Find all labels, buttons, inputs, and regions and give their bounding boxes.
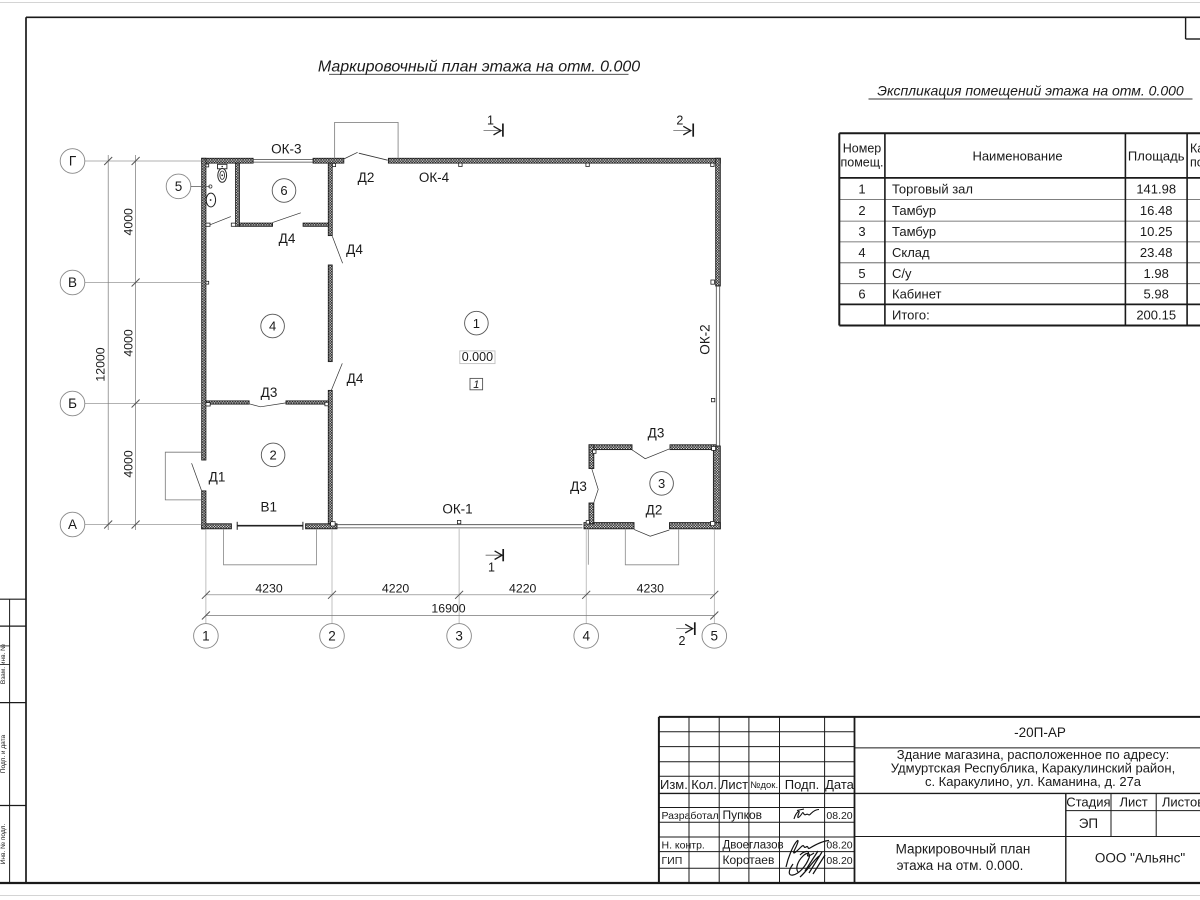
svg-text:4230: 4230 <box>255 581 283 595</box>
svg-text:Кол.: Кол. <box>691 777 717 792</box>
svg-text:Торговый зал: Торговый зал <box>892 181 973 196</box>
svg-text:Д1: Д1 <box>209 470 226 485</box>
svg-text:Маркировочный план этажа на от: Маркировочный план этажа на отм. 0.000 <box>318 59 640 76</box>
svg-text:2: 2 <box>269 448 276 463</box>
svg-text:4: 4 <box>269 319 276 334</box>
svg-text:Д4: Д4 <box>279 231 296 246</box>
svg-text:1.98: 1.98 <box>1144 266 1169 281</box>
svg-text:5: 5 <box>175 179 183 194</box>
svg-text:Листов: Листов <box>1162 795 1200 810</box>
svg-text:Д2: Д2 <box>646 503 663 518</box>
svg-text:141.98: 141.98 <box>1136 181 1176 196</box>
svg-text:4: 4 <box>582 629 590 644</box>
svg-text:-20П-АР: -20П-АР <box>1014 725 1066 740</box>
svg-text:ОК-3: ОК-3 <box>271 142 301 157</box>
svg-text:6: 6 <box>858 287 865 302</box>
svg-text:1: 1 <box>473 379 479 391</box>
svg-text:ОК-4: ОК-4 <box>419 170 450 185</box>
svg-text:Двоеглазов: Двоеглазов <box>723 839 784 851</box>
svg-text:ОК-1: ОК-1 <box>442 502 472 517</box>
svg-text:3: 3 <box>455 629 463 644</box>
svg-text:Д2: Д2 <box>358 170 375 185</box>
svg-text:№док.: №док. <box>750 780 778 791</box>
svg-text:С/у: С/у <box>892 266 912 281</box>
svg-text:08.20: 08.20 <box>826 810 852 822</box>
svg-text:4220: 4220 <box>509 581 537 595</box>
svg-text:ООО "Альянс": ООО "Альянс" <box>1095 851 1185 866</box>
svg-text:Экспликация помещений этажа на: Экспликация помещений этажа на отм. 0.00… <box>877 83 1184 99</box>
svg-text:Стадия: Стадия <box>1066 795 1110 810</box>
svg-text:Коротаев: Коротаев <box>723 853 775 867</box>
svg-text:Площадь: Площадь <box>1128 149 1185 164</box>
svg-text:с. Каракулино, ул. Каманина, д: с. Каракулино, ул. Каманина, д. 27а <box>925 774 1142 789</box>
svg-text:Лист: Лист <box>1119 795 1147 810</box>
svg-text:1: 1 <box>858 181 865 196</box>
svg-text:помещ.: помещ. <box>840 156 883 170</box>
svg-text:Д3: Д3 <box>261 385 278 400</box>
svg-text:Г: Г <box>69 154 77 169</box>
svg-text:Подп.: Подп. <box>785 777 820 792</box>
svg-text:Взам. инв. №: Взам. инв. № <box>0 644 7 684</box>
svg-text:Маркировочный план: Маркировочный план <box>896 841 1031 856</box>
svg-text:Ка: Ка <box>1190 142 1200 156</box>
svg-text:Номер: Номер <box>843 142 882 156</box>
svg-text:В1: В1 <box>260 500 277 515</box>
svg-text:2: 2 <box>679 634 686 648</box>
svg-text:4000: 4000 <box>121 329 135 357</box>
svg-text:12000: 12000 <box>93 347 107 381</box>
svg-text:4000: 4000 <box>121 208 135 236</box>
svg-text:Тамбур: Тамбур <box>892 203 936 218</box>
svg-text:ЭП: ЭП <box>1079 816 1098 831</box>
svg-text:10.25: 10.25 <box>1140 224 1173 239</box>
svg-text:В: В <box>68 275 77 290</box>
svg-text:Д4: Д4 <box>347 371 364 386</box>
svg-text:Д3: Д3 <box>570 479 587 494</box>
svg-text:Лист: Лист <box>720 777 748 792</box>
svg-text:1: 1 <box>202 629 210 644</box>
svg-text:по: по <box>1190 156 1200 170</box>
svg-text:4220: 4220 <box>382 581 410 595</box>
svg-text:4: 4 <box>858 245 865 260</box>
svg-text:1: 1 <box>488 561 495 575</box>
svg-text:Изм.: Изм. <box>660 777 688 792</box>
svg-text:Дата: Дата <box>825 777 855 792</box>
svg-text:Н. контр.: Н. контр. <box>662 839 705 851</box>
svg-text:Подп. и дата: Подп. и дата <box>0 734 7 773</box>
svg-text:Тамбур: Тамбур <box>892 224 936 239</box>
svg-text:16.48: 16.48 <box>1140 203 1173 218</box>
svg-text:Д4: Д4 <box>346 242 363 257</box>
svg-text:6: 6 <box>280 183 287 198</box>
svg-text:Итого:: Итого: <box>892 308 930 323</box>
svg-text:16900: 16900 <box>431 602 465 616</box>
svg-text:1: 1 <box>487 113 494 127</box>
svg-text:Д3: Д3 <box>648 426 665 441</box>
svg-text:2: 2 <box>676 113 683 127</box>
svg-text:этажа на отм. 0.000.: этажа на отм. 0.000. <box>897 858 1024 873</box>
svg-text:4000: 4000 <box>121 450 135 478</box>
svg-text:23.48: 23.48 <box>1140 245 1173 260</box>
svg-text:200.15: 200.15 <box>1136 308 1176 323</box>
svg-text:Склад: Склад <box>892 245 930 260</box>
svg-text:А: А <box>68 517 77 532</box>
svg-text:2: 2 <box>858 203 865 218</box>
svg-text:4230: 4230 <box>637 581 665 595</box>
svg-text:ОК-2: ОК-2 <box>698 324 713 354</box>
svg-text:Разработал: Разработал <box>662 810 719 822</box>
svg-text:Пупков: Пупков <box>723 808 763 822</box>
svg-text:1: 1 <box>473 316 480 331</box>
svg-text:5.98: 5.98 <box>1144 287 1169 302</box>
svg-text:3: 3 <box>858 224 865 239</box>
svg-text:5: 5 <box>858 266 865 281</box>
svg-text:0.000: 0.000 <box>462 350 493 364</box>
svg-text:Наименование: Наименование <box>972 149 1062 164</box>
svg-text:Кабинет: Кабинет <box>892 287 941 302</box>
svg-text:08.20: 08.20 <box>826 855 852 867</box>
svg-text:Б: Б <box>68 396 77 411</box>
svg-text:Инв. № подл.: Инв. № подл. <box>0 824 7 865</box>
svg-text:2: 2 <box>328 629 336 644</box>
svg-text:3: 3 <box>658 476 665 491</box>
svg-text:5: 5 <box>711 629 719 644</box>
svg-text:08.20: 08.20 <box>826 839 852 851</box>
svg-text:ГИП: ГИП <box>662 855 683 867</box>
